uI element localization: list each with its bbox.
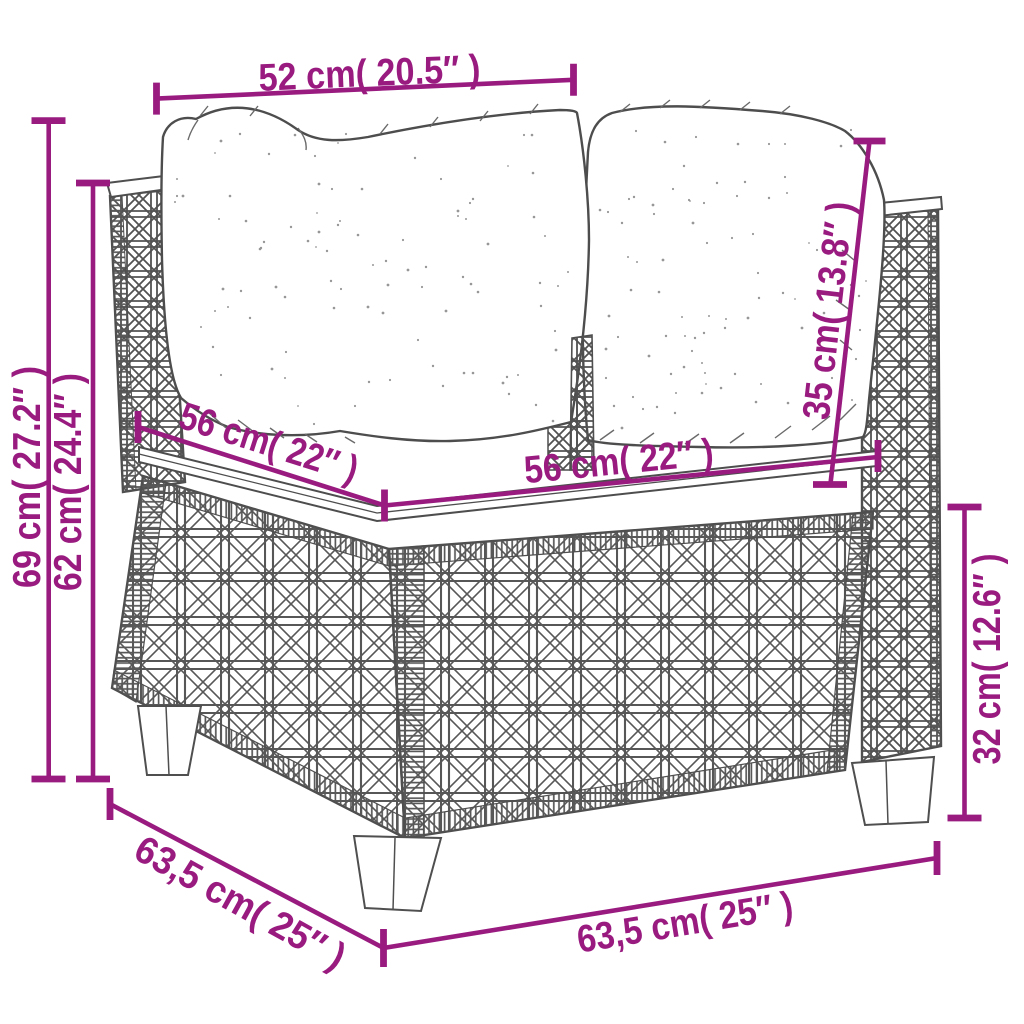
- svg-text:69 cm( 27.2″ ): 69 cm( 27.2″ ): [6, 366, 49, 588]
- svg-text:32 cm( 12.6″ ): 32 cm( 12.6″ ): [966, 554, 1009, 765]
- svg-text:62 cm( 24.4″ ): 62 cm( 24.4″ ): [47, 373, 90, 591]
